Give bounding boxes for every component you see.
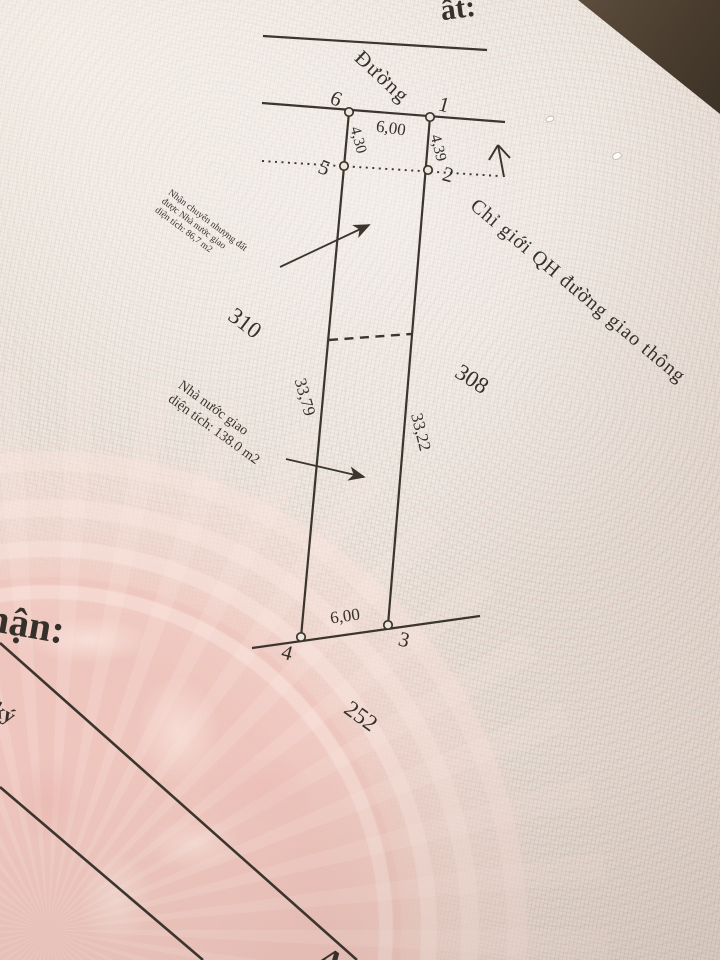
- vertex-point-4: [297, 633, 305, 641]
- glare-speck: [612, 151, 623, 161]
- plot-left-boundary: [301, 112, 349, 637]
- vertex-point-1: [426, 113, 434, 121]
- heading-top-partial: ất:: [439, 0, 478, 26]
- plot-right-boundary: [388, 117, 430, 625]
- certificate-photo: ất: hận: ký A Đường Chỉ giới QH đường gi…: [0, 0, 720, 960]
- vertex-point-3: [384, 621, 392, 629]
- setback-dotted-line: [262, 161, 499, 176]
- vertex-point-6: [345, 108, 353, 116]
- qh-boundary-arrow: [489, 145, 510, 177]
- certificate-frame-line: [263, 36, 487, 50]
- plot-divider-dashed-line: [329, 334, 411, 340]
- table-border-line-b: [0, 787, 203, 960]
- glare-speck: [545, 115, 554, 123]
- section-title-left-partial: hận:: [0, 598, 68, 651]
- measure-top-width: 6,00: [375, 118, 407, 139]
- transfer-note-arrow: [280, 225, 369, 267]
- vertex-point-2: [424, 166, 432, 174]
- vertex-point-5: [340, 162, 348, 170]
- measure-bottom-width: 6,00: [329, 606, 361, 627]
- table-border-line-a: [0, 643, 357, 960]
- state-grant-arrow: [286, 459, 364, 477]
